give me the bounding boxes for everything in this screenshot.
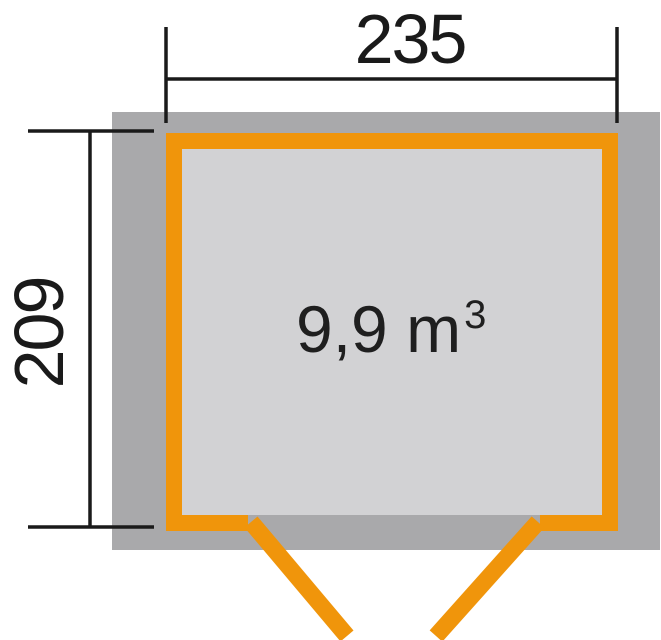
floorplan-svg: 235 209 9,9 m3 — [0, 0, 661, 640]
wall-bottom-left-segment — [166, 515, 248, 531]
volume-label: 9,9 m3 — [296, 292, 486, 366]
width-dimension-label: 235 — [355, 0, 466, 78]
width-dimension: 235 — [166, 0, 617, 123]
wall-left — [166, 133, 182, 531]
depth-dimension-label: 209 — [0, 278, 78, 389]
wall-top — [166, 133, 618, 149]
wall-bottom-right-segment — [540, 515, 618, 531]
volume-label-base: 9,9 m — [296, 292, 461, 366]
wall-right — [602, 133, 618, 531]
floorplan-page: 235 209 9,9 m3 — [0, 0, 661, 640]
volume-label-superscript: 3 — [464, 293, 486, 337]
